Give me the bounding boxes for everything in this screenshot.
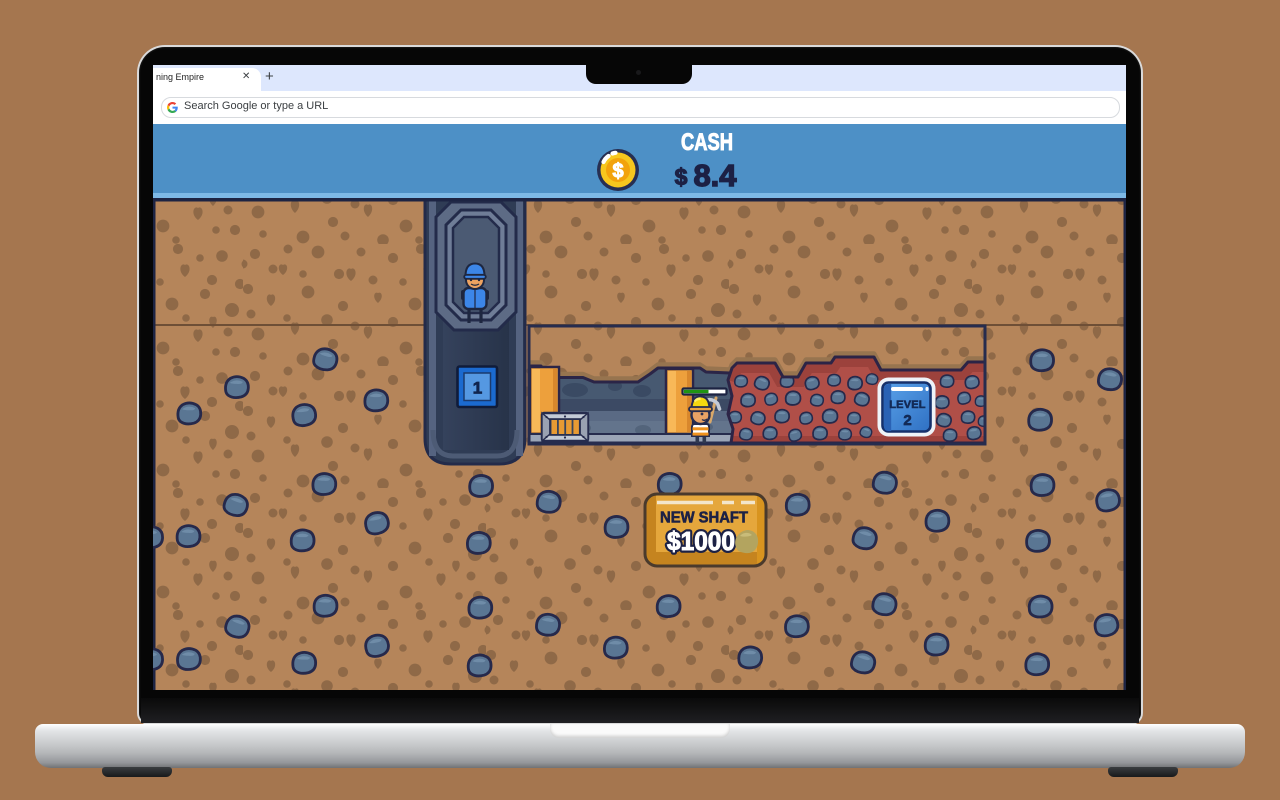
svg-text:$: $ [612,161,623,183]
svg-text:LEVEL: LEVEL [889,399,926,411]
svg-text:8.4: 8.4 [693,158,737,193]
svg-text:CASH: CASH [681,129,733,156]
svg-text:$: $ [675,164,688,190]
svg-text:NEW SHAFT: NEW SHAFT [660,510,748,527]
svg-text:2: 2 [903,412,911,429]
svg-text:1: 1 [473,379,482,398]
svg-text:$1000: $1000 [667,526,735,556]
